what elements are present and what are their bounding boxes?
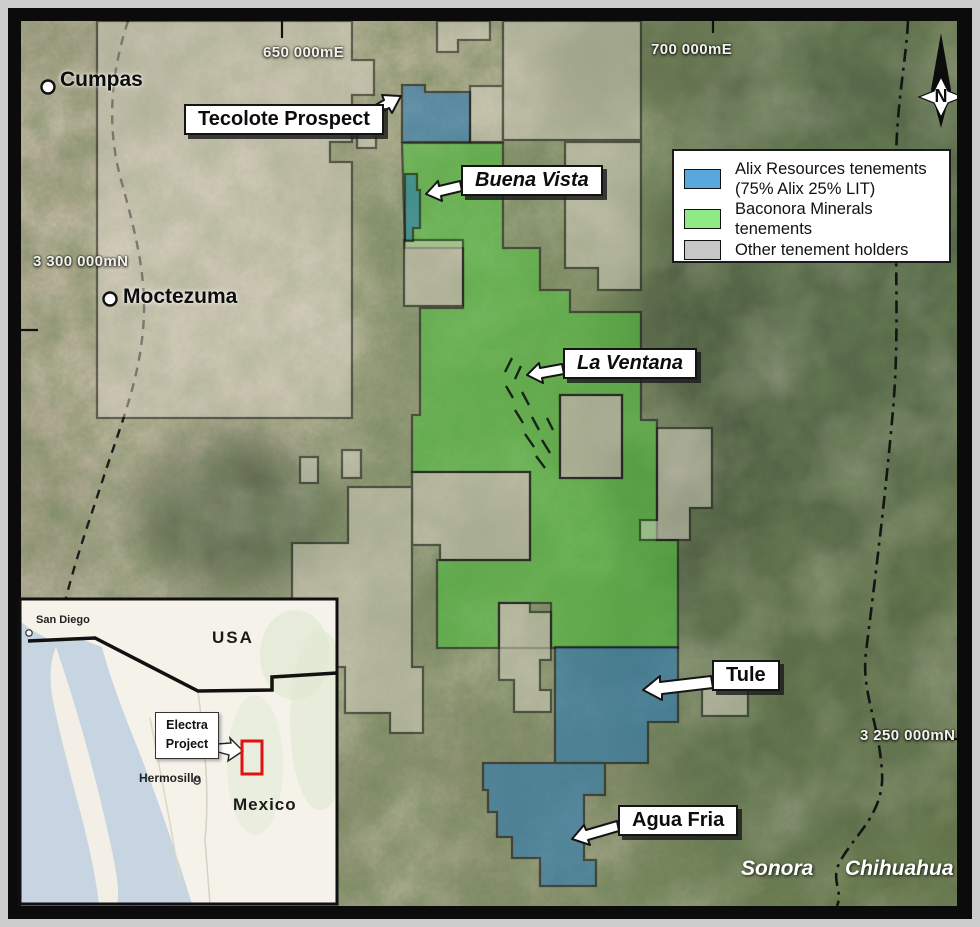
legend-label-other: Other tenement holders [735, 240, 908, 260]
tenement-map-figure: 650 000mE 700 000mE 3 300 000mN 3 250 00… [0, 0, 980, 927]
annotation-agua-fria: Agua Fria [618, 805, 738, 836]
san-diego-dot [26, 630, 32, 636]
grid-label-700000mE: 700 000mE [651, 41, 732, 58]
tenement-other-right-mid [560, 395, 622, 478]
north-arrow-label: N [932, 86, 950, 107]
inset-label-san-diego: San Diego [36, 614, 90, 626]
map-canvas [0, 0, 980, 927]
legend-label-alix: Alix Resources tenements [735, 160, 927, 178]
legend-label-baconora: Baconora Minerals tenements [735, 199, 939, 239]
annotation-tule: Tule [712, 660, 780, 691]
annotation-buena-vista: Buena Vista [461, 165, 603, 196]
town-label-moctezuma: Moctezuma [123, 285, 237, 309]
tenement-other-tecolote-east [470, 86, 503, 142]
legend-swatch-other [684, 240, 721, 260]
tenement-alix-tecolote [402, 85, 470, 142]
inset-label-hermosillo: Hermosillo [139, 771, 201, 785]
legend-text-alix: Alix Resources tenements (75% Alix 25% L… [735, 159, 927, 199]
state-label-chihuahua: Chihuahua [845, 857, 954, 881]
town-label-cumpas: Cumpas [60, 68, 143, 92]
tenement-other-buenavista-south [404, 240, 463, 306]
legend-swatch-alix [684, 169, 721, 189]
inset-label-mexico: Mexico [233, 795, 297, 815]
inset-electra-line2: Project [166, 737, 208, 751]
grid-label-3250000mN: 3 250 000mN [860, 727, 955, 744]
legend-row-other: Other tenement holders [684, 240, 939, 260]
cumpas-dot [42, 81, 55, 94]
grid-label-650000mE: 650 000mE [263, 44, 344, 61]
tenement-other-small-square-b [342, 450, 361, 478]
legend: Alix Resources tenements (75% Alix 25% L… [672, 149, 951, 263]
legend-row-baconora: Baconora Minerals tenements [684, 199, 939, 239]
inset-electra-project-box: Electra Project [155, 712, 219, 759]
state-label-sonora: Sonora [741, 857, 813, 881]
legend-row-alix: Alix Resources tenements (75% Alix 25% L… [684, 159, 939, 199]
annotation-la-ventana: La Ventana [563, 348, 697, 379]
legend-swatch-baconora [684, 209, 721, 229]
tenement-other-tule-east [702, 688, 748, 716]
inset-electra-line1: Electra [166, 718, 208, 732]
moctezuma-dot [104, 293, 117, 306]
annotation-tecolote-prospect: Tecolote Prospect [184, 104, 384, 135]
grid-label-3300000mN: 3 300 000mN [33, 253, 128, 270]
inset-label-usa: USA [212, 628, 254, 648]
tenement-other-small-square-a [300, 457, 318, 483]
legend-sublabel-alix: (75% Alix 25% LIT) [735, 180, 875, 198]
tenement-other-ne-block [503, 21, 641, 140]
